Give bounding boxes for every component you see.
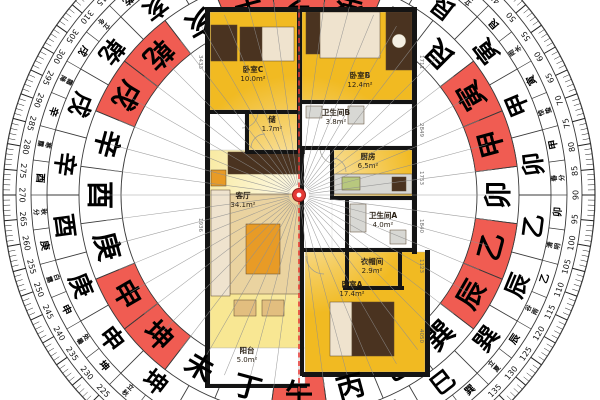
room-area-bedroom-a: 17.4m² (339, 290, 364, 298)
solar-term-char: 分 (557, 174, 566, 182)
wall (205, 7, 210, 388)
room-area-bathroom-b: 3.8m² (326, 118, 347, 126)
wall (302, 372, 430, 377)
room-area-bedroom-c: 10.0m² (240, 75, 265, 83)
ring3-mountain-卯: 卯 (551, 207, 565, 218)
furniture-bath-b-sink (306, 106, 322, 118)
degree-label: 275 (18, 163, 28, 179)
wall (300, 100, 417, 104)
luopan-floorplan-screenshot: 5101520253035404550556065707580859095100… (0, 0, 600, 400)
furniture-bed-b-headboard (306, 12, 320, 54)
room-area-bathroom-a: 4.0m² (373, 221, 394, 229)
degree-label: 80 (566, 141, 577, 153)
furniture-bed-b (320, 12, 380, 58)
dimension-label: 1123 (418, 259, 424, 273)
wall (205, 7, 417, 12)
dimension-label: 1753 (418, 171, 424, 185)
ring2-mountain-酉: 酉 (49, 212, 81, 240)
dimension-label: 1711 (418, 55, 424, 69)
furniture-wardrobe-c (211, 25, 237, 61)
room-label-kitchen: 厨房 (361, 151, 376, 161)
degree-label: 270 (18, 187, 27, 202)
dimension-label: 2849 (418, 123, 424, 137)
dimension-label: 3433 (197, 55, 203, 69)
furniture-bath-a-tub (350, 204, 366, 232)
ring3-mountain-酉: 酉 (34, 173, 47, 184)
furniture-kitchen-stove (392, 177, 406, 191)
room-label-bedroom-b: 卧室B (350, 70, 371, 80)
dimension-label: 1936 (197, 218, 203, 232)
degree-label: 85 (570, 165, 580, 176)
dimension-label: 4050 (418, 329, 424, 343)
degree-label: 95 (570, 214, 580, 225)
furniture-bath-b-toilet (348, 106, 364, 124)
furniture-ottoman-2 (262, 300, 284, 316)
furniture-fan (392, 34, 406, 48)
room-area-balcony: 5.0m² (237, 356, 258, 364)
ring2-mountain-卯: 卯 (517, 150, 549, 178)
compass-floorplan-canvas: 5101520253035404550556065707580859095100… (0, 0, 600, 400)
room-label-storage: 储 (268, 114, 276, 124)
wall (398, 252, 402, 290)
solar-term-char: 分 (32, 209, 41, 217)
room-area-bedroom-b: 12.4m² (347, 81, 372, 89)
room-label-closet: 衣帽间 (361, 256, 384, 266)
wall (330, 196, 417, 200)
degree-label: 265 (18, 211, 28, 227)
dimension-label: 1840 (418, 219, 424, 233)
room-area-storage: 1.7m² (262, 125, 283, 133)
wall (345, 200, 349, 248)
furniture-bath-a-toilet (390, 230, 406, 244)
room-label-bedroom-c: 卧室C (243, 64, 264, 74)
ring2-mountain-辛: 辛 (49, 150, 81, 178)
ring2-mountain-乙: 乙 (517, 212, 549, 240)
compass-center-dot-core (297, 193, 302, 198)
wall (205, 110, 300, 114)
wall (245, 110, 249, 154)
room-label-balcony: 阳台 (240, 345, 255, 355)
degree-label: 90 (572, 190, 581, 200)
furniture-bed-c (262, 27, 294, 61)
furniture-bed-a (330, 302, 352, 356)
room-label-bathroom-b: 卫生间B (322, 107, 350, 117)
furniture-bed-a-dark (352, 302, 394, 356)
